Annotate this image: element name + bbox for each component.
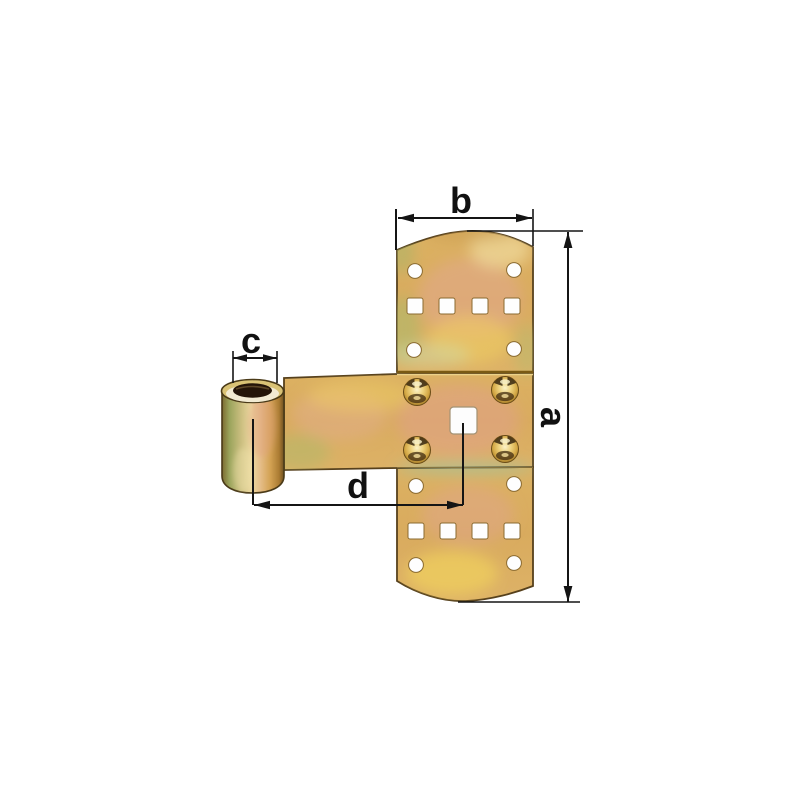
product-image-canvas: b c d a (0, 0, 800, 800)
dim-label-b: b (439, 179, 483, 223)
dim-label-d: d (336, 464, 380, 508)
t-hinge-illustration (0, 0, 800, 800)
hinge-body (222, 222, 541, 601)
barrel-bore (233, 383, 272, 397)
dim-label-a: a (531, 395, 575, 439)
dim-label-c: c (229, 319, 273, 363)
